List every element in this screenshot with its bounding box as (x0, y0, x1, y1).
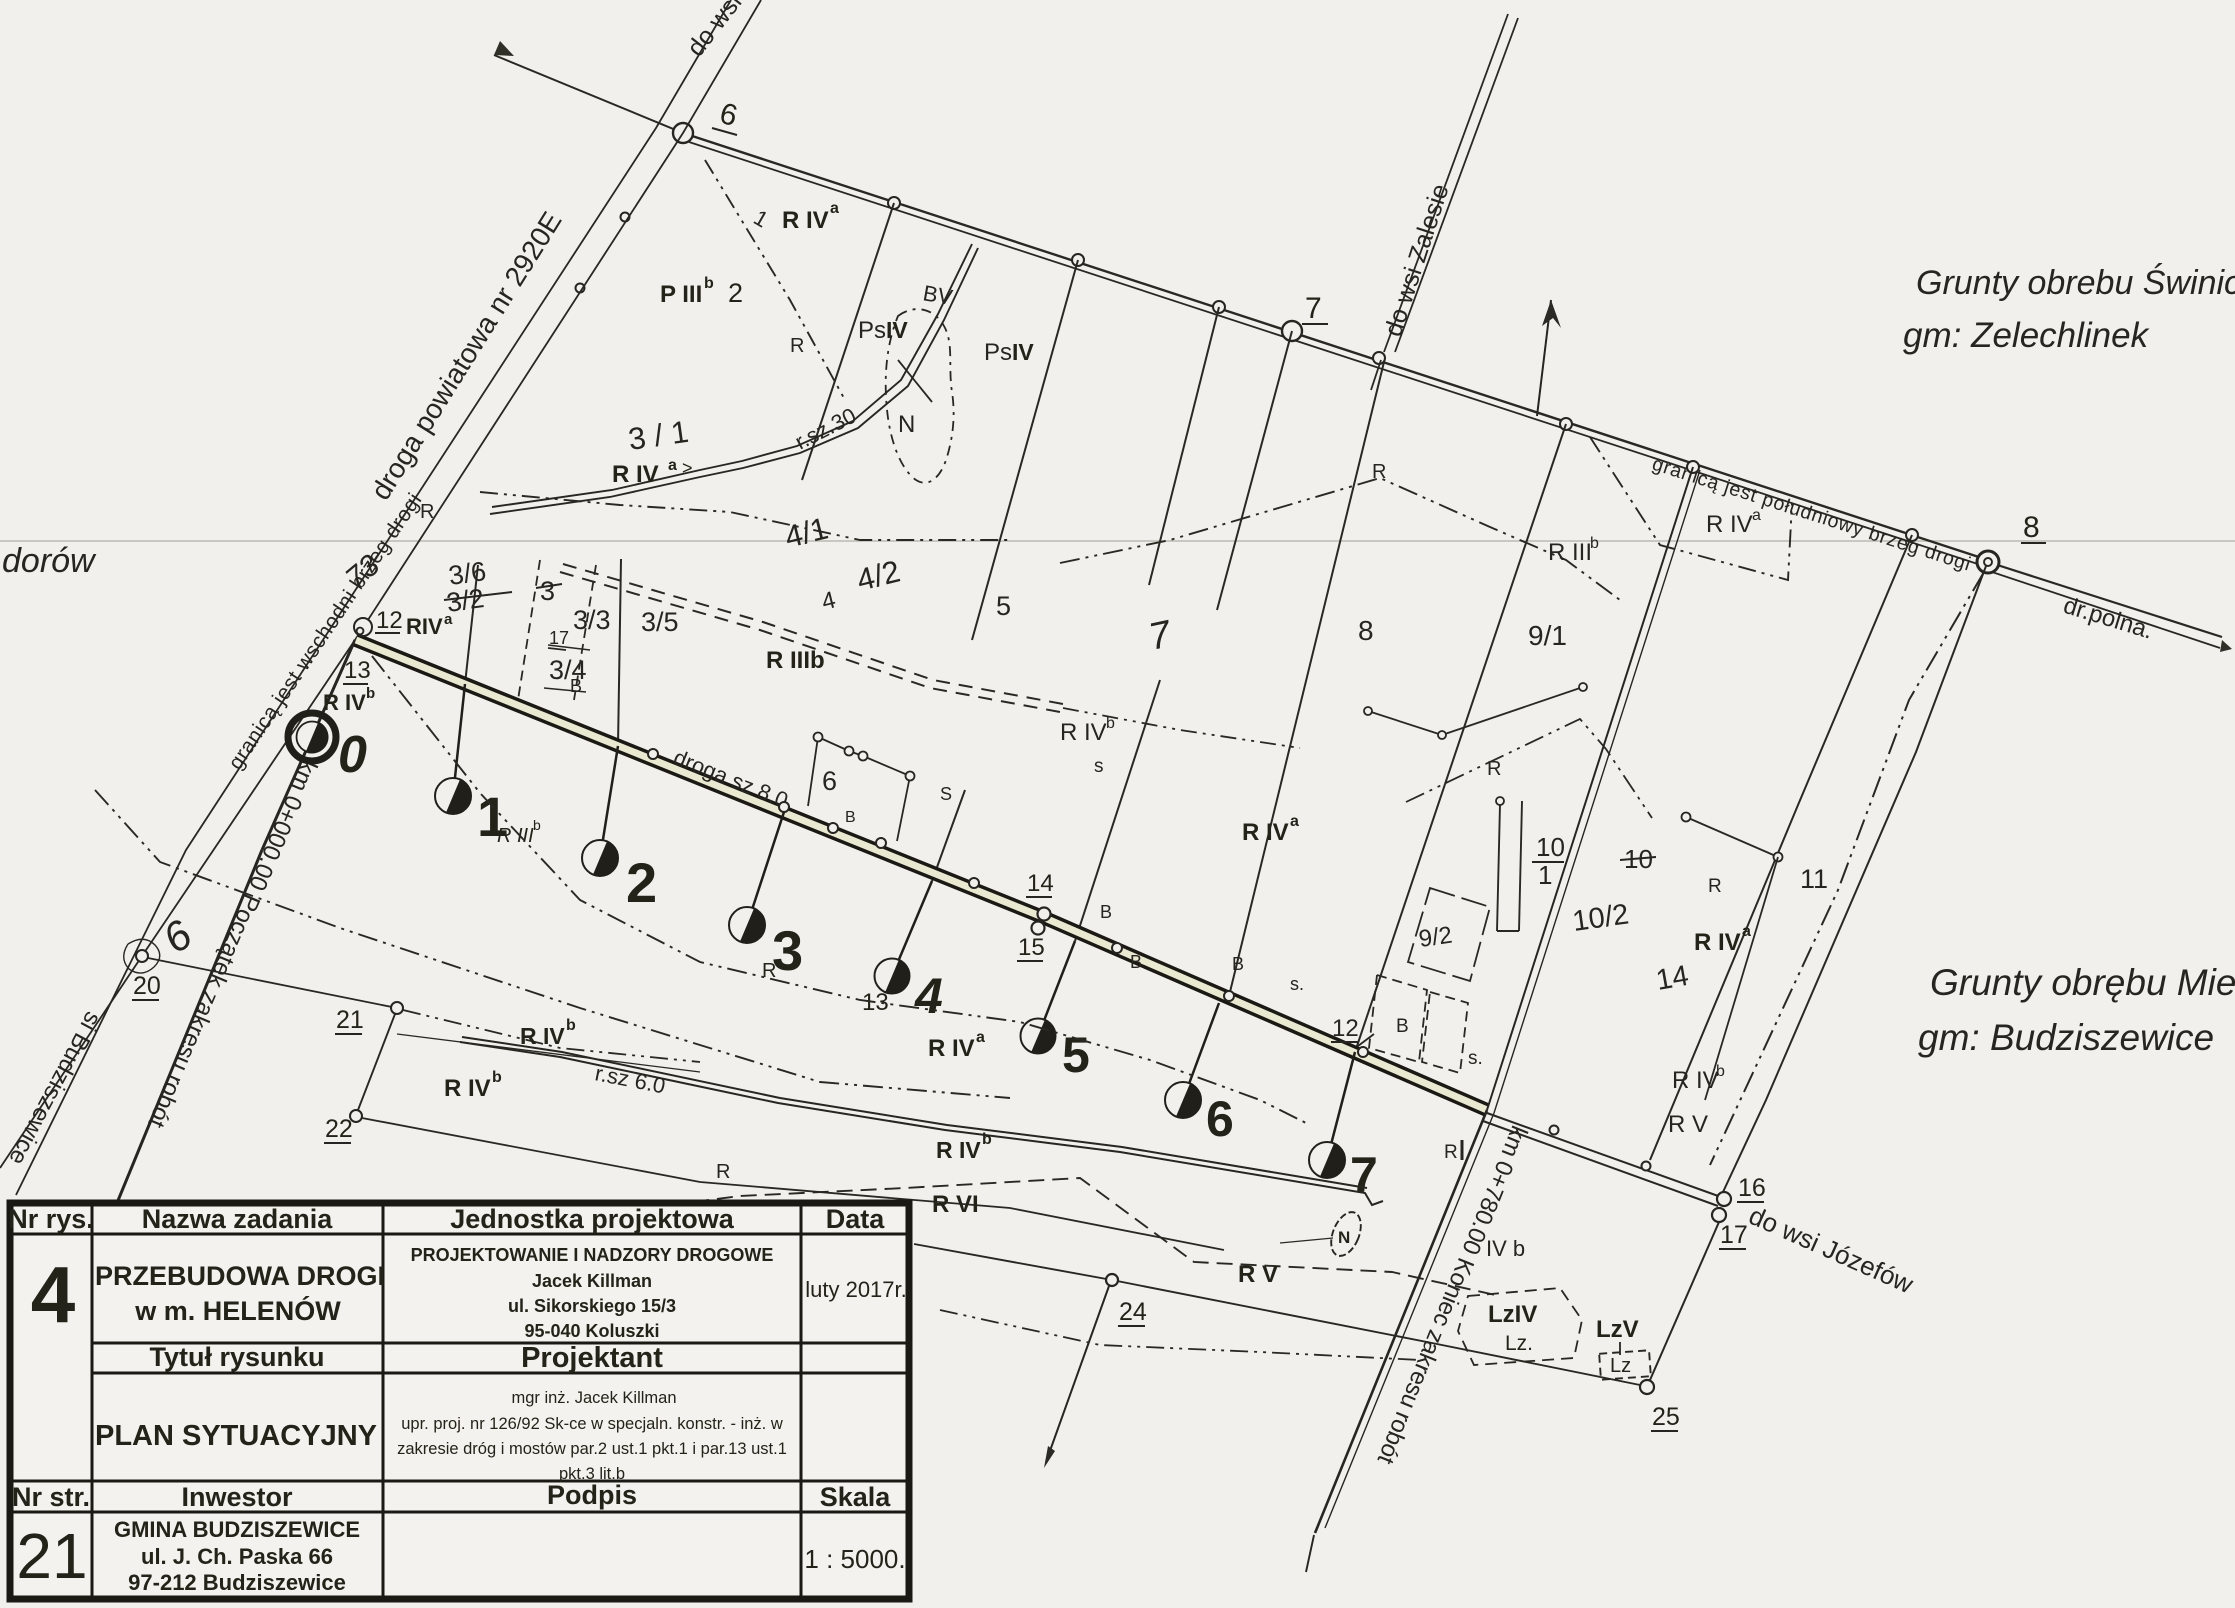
svg-text:Skala: Skala (820, 1482, 892, 1512)
svg-text:B: B (1100, 902, 1112, 922)
svg-text:gm: Zelechlinek: gm: Zelechlinek (1903, 316, 2150, 355)
svg-text:Ps: Ps (984, 339, 1012, 366)
svg-text:97-212 Budziszewice: 97-212 Budziszewice (128, 1570, 346, 1595)
svg-text:5: 5 (996, 591, 1011, 621)
svg-text:R IV: R IV (1672, 1067, 1719, 1094)
svg-text:a: a (1290, 813, 1299, 830)
svg-text:8: 8 (1358, 615, 1374, 646)
svg-text:15: 15 (1018, 934, 1045, 961)
svg-text:R IV: R IV (444, 1075, 491, 1102)
svg-text:PRZEBUDOWA DROGI: PRZEBUDOWA DROGI (95, 1261, 385, 1291)
svg-text:R IV: R IV (1706, 511, 1753, 538)
svg-text:R VI: R VI (932, 1191, 979, 1218)
svg-text:4: 4 (31, 1250, 76, 1339)
svg-text:0: 0 (338, 726, 367, 784)
svg-text:Nr str.: Nr str. (12, 1482, 90, 1512)
svg-text:a: a (1742, 923, 1751, 940)
svg-text:R V: R V (1668, 1111, 1708, 1138)
svg-text:7: 7 (1305, 292, 1322, 325)
svg-text:B: B (570, 676, 582, 696)
svg-text:17: 17 (1720, 1221, 1748, 1249)
svg-text:12: 12 (1332, 1015, 1359, 1042)
svg-text:PLAN SYTUACYJNY: PLAN SYTUACYJNY (95, 1420, 377, 1452)
svg-text:3/2: 3/2 (445, 583, 486, 618)
svg-text:s.: s. (1290, 974, 1304, 994)
svg-text:Nr rys.: Nr rys. (8, 1204, 94, 1234)
svg-text:>: > (682, 458, 693, 478)
svg-text:Lz.: Lz. (1505, 1332, 1533, 1355)
svg-text:R III: R III (1548, 539, 1592, 566)
svg-text:R IV: R IV (782, 207, 829, 234)
svg-text:3: 3 (772, 919, 803, 982)
svg-text:R IV: R IV (928, 1035, 975, 1062)
svg-text:dorów: dorów (2, 542, 97, 580)
svg-text:b: b (566, 1017, 576, 1034)
svg-text:Nazwa zadania: Nazwa zadania (142, 1204, 334, 1234)
svg-text:gm: Budziszewice: gm: Budziszewice (1918, 1017, 2214, 1058)
svg-text:ul. J. Ch. Paska 66: ul. J. Ch. Paska 66 (141, 1544, 333, 1569)
svg-text:BV: BV (921, 280, 955, 310)
svg-text:3/3: 3/3 (573, 605, 611, 635)
svg-text:b: b (492, 1069, 502, 1086)
svg-text:R: R (1444, 1142, 1458, 1163)
svg-text:R IV: R IV (1242, 819, 1289, 846)
svg-text:b: b (982, 1131, 992, 1148)
svg-text:6: 6 (822, 766, 837, 796)
svg-text:Ps: Ps (858, 317, 886, 344)
svg-text:95-040 Koluszki: 95-040 Koluszki (524, 1321, 659, 1341)
svg-text:10: 10 (1536, 832, 1565, 862)
svg-text:B: B (1232, 954, 1244, 974)
svg-text:1 : 5000.: 1 : 5000. (804, 1544, 905, 1574)
svg-text:LzIV: LzIV (1488, 1301, 1537, 1328)
svg-text:R: R (790, 335, 804, 357)
svg-text:R V: R V (1238, 1261, 1278, 1288)
svg-text:b: b (1590, 535, 1599, 552)
svg-text:14: 14 (1654, 960, 1691, 997)
svg-text:P III: P III (660, 281, 702, 308)
svg-text:N: N (898, 411, 915, 438)
svg-text:Jacek Killman: Jacek Killman (532, 1271, 652, 1291)
svg-text:b: b (704, 275, 714, 292)
svg-text:17: 17 (549, 628, 569, 648)
svg-text:2: 2 (626, 851, 657, 914)
svg-text:R: R (420, 501, 434, 523)
svg-text:R IV: R IV (936, 1137, 981, 1163)
svg-text:Tytuł rysunku: Tytuł rysunku (149, 1342, 324, 1372)
svg-text:9/2: 9/2 (1417, 922, 1454, 953)
svg-text:a: a (1752, 507, 1761, 524)
svg-text:a: a (976, 1029, 985, 1046)
svg-text:zakresie dróg i mostów par.2 u: zakresie dróg i mostów par.2 ust.1 pkt.1… (397, 1440, 787, 1458)
svg-text:s: s (1094, 756, 1104, 777)
svg-text:Lz: Lz (1610, 1355, 1631, 1377)
svg-text:R IV: R IV (1694, 929, 1741, 956)
svg-text:2: 2 (728, 278, 743, 308)
svg-text:R IV: R IV (612, 461, 659, 488)
svg-text:Jednostka projektowa: Jednostka projektowa (450, 1204, 735, 1234)
svg-text:ul. Sikorskiego 15/3: ul. Sikorskiego 15/3 (508, 1296, 676, 1316)
svg-text:Podpis: Podpis (547, 1480, 637, 1510)
svg-text:R: R (1708, 876, 1722, 897)
svg-text:B: B (1396, 1016, 1409, 1037)
svg-text:b: b (366, 685, 375, 702)
svg-text:24: 24 (1119, 1298, 1147, 1326)
svg-text:13: 13 (344, 657, 371, 684)
svg-text:R IV: R IV (1060, 719, 1107, 746)
svg-text:upr. proj. nr 126/92 Sk-ce w s: upr. proj. nr 126/92 Sk-ce w specjaln. k… (401, 1415, 783, 1433)
svg-text:25: 25 (1652, 1403, 1680, 1431)
svg-text:IV: IV (886, 317, 908, 343)
svg-text:8: 8 (2023, 511, 2040, 544)
svg-text:22: 22 (325, 1115, 353, 1143)
svg-text:luty 2017r.: luty 2017r. (805, 1277, 907, 1302)
svg-text:b: b (1106, 715, 1115, 732)
svg-text:7: 7 (1350, 1147, 1378, 1203)
svg-text:9/1: 9/1 (1528, 620, 1567, 651)
svg-text:Data: Data (826, 1204, 886, 1234)
svg-text:N: N (1338, 1228, 1350, 1247)
svg-text:mgr inż. Jacek Killman: mgr inż. Jacek Killman (511, 1389, 676, 1407)
svg-text:R: R (1487, 758, 1501, 780)
svg-text:5: 5 (1062, 1027, 1090, 1083)
svg-text:21: 21 (336, 1006, 364, 1034)
svg-text:20: 20 (133, 972, 161, 1000)
svg-text:R III: R III (497, 825, 534, 847)
svg-text:21: 21 (16, 1520, 87, 1592)
svg-text:B: B (1130, 952, 1142, 972)
svg-text:S: S (940, 784, 952, 804)
svg-text:a: a (830, 200, 839, 217)
svg-text:4: 4 (914, 968, 943, 1024)
svg-text:R: R (716, 1161, 730, 1183)
svg-text:b: b (533, 817, 541, 833)
svg-text:6: 6 (1206, 1091, 1234, 1147)
svg-text:s.: s. (1468, 1048, 1483, 1069)
svg-text:R IIIb: R IIIb (766, 647, 825, 674)
svg-text:GMINA BUDZISZEWICE: GMINA BUDZISZEWICE (114, 1517, 360, 1542)
svg-text:Projektant: Projektant (521, 1342, 663, 1374)
svg-text:R: R (1372, 461, 1386, 483)
svg-text:16: 16 (1738, 1174, 1766, 1202)
svg-text:w m. HELENÓW: w m. HELENÓW (134, 1295, 341, 1326)
svg-text:3: 3 (540, 576, 555, 606)
svg-text:B: B (845, 809, 856, 826)
svg-text:LzV: LzV (1596, 1316, 1639, 1343)
svg-text:IV b: IV b (1486, 1236, 1525, 1261)
svg-text:11: 11 (1800, 864, 1828, 894)
svg-text:1: 1 (1538, 860, 1552, 890)
svg-text:PROJEKTOWANIE I NADZORY DROGOW: PROJEKTOWANIE I NADZORY DROGOWE (411, 1245, 774, 1265)
svg-text:3/5: 3/5 (641, 607, 679, 637)
svg-text:IV: IV (1012, 339, 1034, 365)
svg-text:12: 12 (376, 607, 403, 634)
svg-text:RIV: RIV (406, 614, 443, 639)
svg-text:b: b (1716, 1063, 1725, 1080)
svg-text:Grunty obrebu Świnica: Grunty obrebu Świnica (1916, 263, 2235, 302)
svg-text:R IV: R IV (520, 1023, 565, 1049)
svg-text:R IV: R IV (323, 690, 366, 715)
svg-text:14: 14 (1027, 870, 1054, 897)
svg-text:Grunty obrębu Mie: Grunty obrębu Mie (1930, 962, 2235, 1003)
svg-text:Inwestor: Inwestor (181, 1482, 293, 1512)
svg-text:a: a (668, 457, 677, 474)
